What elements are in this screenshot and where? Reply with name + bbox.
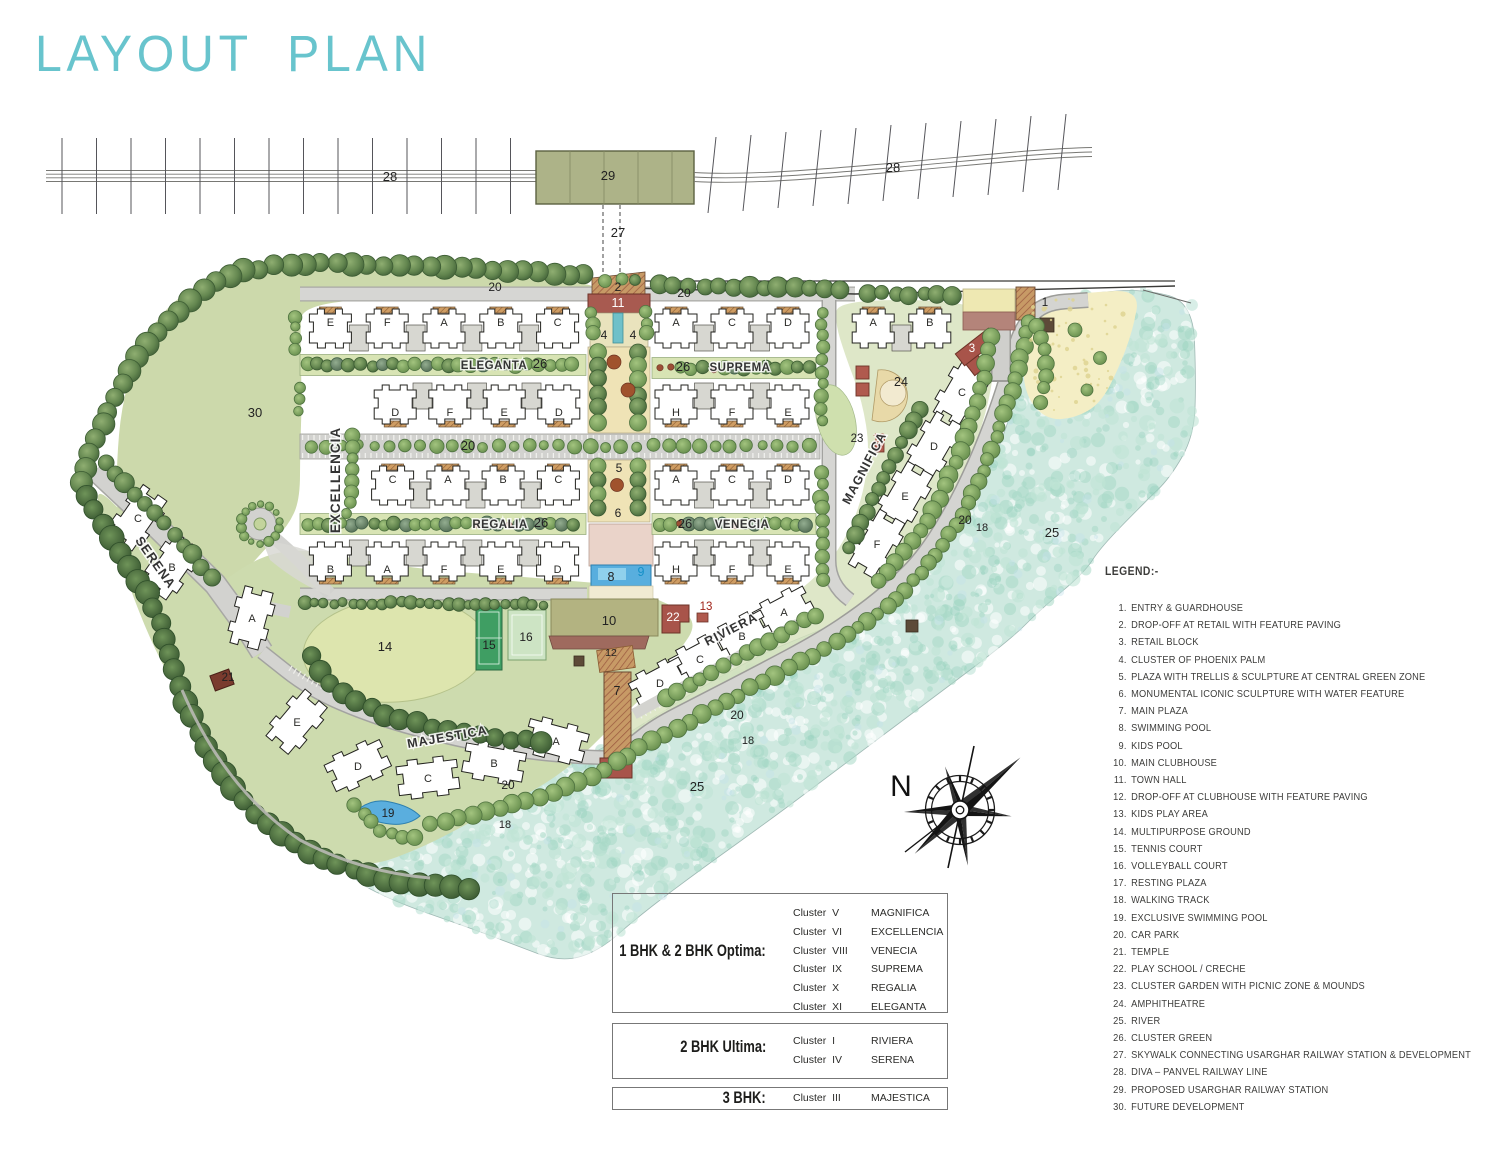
svg-text:D: D (354, 761, 362, 773)
svg-text:C: C (389, 474, 397, 486)
svg-text:D: D (656, 678, 664, 690)
svg-text:18: 18 (742, 735, 754, 747)
svg-text:18: 18 (499, 819, 511, 831)
svg-text:F: F (384, 317, 391, 329)
svg-text:B: B (490, 758, 497, 770)
svg-text:4: 4 (601, 328, 608, 342)
svg-text:5: 5 (616, 461, 623, 475)
svg-text:25: 25 (690, 779, 704, 794)
svg-text:20: 20 (461, 438, 475, 453)
svg-text:F: F (874, 539, 881, 551)
svg-text:C: C (554, 317, 562, 329)
svg-text:F: F (729, 564, 736, 576)
svg-text:22: 22 (666, 610, 680, 624)
svg-text:ELEGANTA: ELEGANTA (461, 360, 527, 372)
svg-text:26: 26 (676, 359, 690, 374)
svg-text:B: B (499, 474, 506, 486)
svg-text:C: C (728, 317, 736, 329)
svg-text:13: 13 (700, 601, 713, 613)
svg-text:SUPREMA: SUPREMA (709, 362, 770, 374)
svg-text:26: 26 (533, 356, 547, 371)
svg-text:21: 21 (222, 672, 235, 684)
svg-text:20: 20 (488, 280, 502, 294)
svg-text:C: C (958, 387, 966, 399)
svg-text:28: 28 (383, 169, 397, 184)
svg-text:29: 29 (601, 168, 615, 183)
svg-text:REGALIA: REGALIA (472, 519, 527, 531)
svg-text:C: C (134, 513, 142, 525)
svg-text:4: 4 (630, 328, 637, 342)
svg-text:H: H (672, 407, 680, 419)
svg-text:C: C (728, 474, 736, 486)
svg-text:VENECIA: VENECIA (715, 519, 770, 531)
svg-text:E: E (497, 564, 504, 576)
svg-text:26: 26 (678, 516, 692, 531)
svg-text:27: 27 (611, 225, 625, 240)
svg-text:18: 18 (976, 522, 988, 534)
svg-text:H: H (672, 564, 680, 576)
svg-text:1: 1 (1042, 297, 1048, 309)
svg-text:20: 20 (677, 286, 691, 300)
svg-text:30: 30 (248, 405, 262, 420)
svg-text:A: A (870, 317, 878, 329)
svg-text:28: 28 (886, 160, 900, 175)
svg-text:A: A (248, 613, 256, 625)
svg-text:D: D (784, 474, 792, 486)
svg-text:A: A (552, 736, 560, 748)
svg-text:F: F (441, 564, 448, 576)
svg-text:19: 19 (382, 808, 395, 820)
svg-text:B: B (327, 564, 334, 576)
svg-text:2: 2 (615, 280, 622, 294)
svg-text:A: A (780, 607, 788, 619)
svg-text:14: 14 (378, 639, 392, 654)
svg-text:A: A (444, 474, 452, 486)
svg-text:B: B (497, 317, 504, 329)
svg-text:D: D (555, 407, 563, 419)
svg-text:N: N (890, 770, 912, 803)
svg-text:16: 16 (519, 630, 533, 644)
svg-text:E: E (293, 717, 300, 729)
svg-text:F: F (446, 407, 453, 419)
svg-text:7: 7 (614, 684, 621, 698)
svg-text:6: 6 (615, 506, 622, 520)
svg-text:E: E (501, 407, 508, 419)
svg-text:E: E (784, 564, 791, 576)
svg-text:20: 20 (958, 513, 972, 527)
svg-text:A: A (384, 564, 392, 576)
svg-text:24: 24 (894, 375, 908, 389)
svg-text:E: E (327, 317, 334, 329)
svg-text:26: 26 (534, 515, 548, 530)
svg-text:15: 15 (482, 638, 496, 652)
svg-text:EXCELLENCIA: EXCELLENCIA (328, 427, 343, 533)
svg-text:9: 9 (638, 565, 645, 579)
svg-text:C: C (696, 654, 704, 666)
svg-text:D: D (784, 317, 792, 329)
svg-text:C: C (554, 474, 562, 486)
svg-text:A: A (440, 317, 448, 329)
svg-text:10: 10 (602, 613, 616, 628)
svg-text:25: 25 (1045, 525, 1059, 540)
svg-text:F: F (729, 407, 736, 419)
svg-text:23: 23 (851, 433, 864, 445)
svg-text:20: 20 (730, 708, 744, 722)
svg-text:20: 20 (501, 778, 515, 792)
svg-text:12: 12 (605, 647, 617, 659)
svg-text:B: B (926, 317, 933, 329)
svg-text:D: D (930, 441, 938, 453)
svg-text:A: A (672, 317, 680, 329)
svg-text:11: 11 (612, 296, 625, 310)
svg-text:E: E (784, 407, 791, 419)
svg-text:D: D (554, 564, 562, 576)
svg-text:3: 3 (969, 343, 975, 355)
svg-text:E: E (901, 491, 908, 503)
svg-text:C: C (424, 773, 432, 785)
svg-text:D: D (391, 407, 399, 419)
svg-text:8: 8 (608, 570, 615, 584)
svg-text:A: A (672, 474, 680, 486)
